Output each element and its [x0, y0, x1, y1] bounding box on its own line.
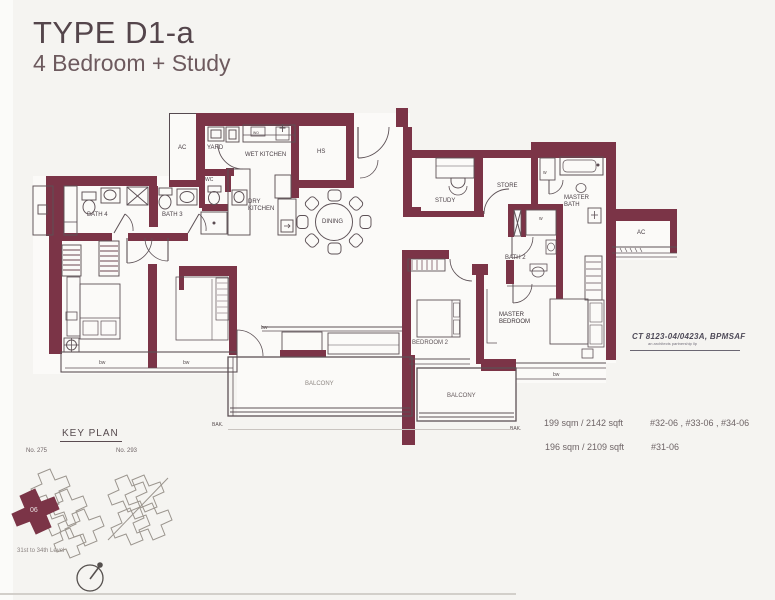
svg-text:bw: bw: [183, 360, 190, 366]
svg-text:bw: bw: [99, 360, 106, 366]
svg-text:w: w: [543, 170, 547, 176]
svg-text:bw: bw: [553, 372, 560, 378]
svg-text:w: w: [539, 216, 543, 222]
svg-text:bw: bw: [261, 325, 268, 331]
svg-text:06: 06: [30, 507, 38, 514]
svg-text:wo: wo: [253, 130, 259, 135]
